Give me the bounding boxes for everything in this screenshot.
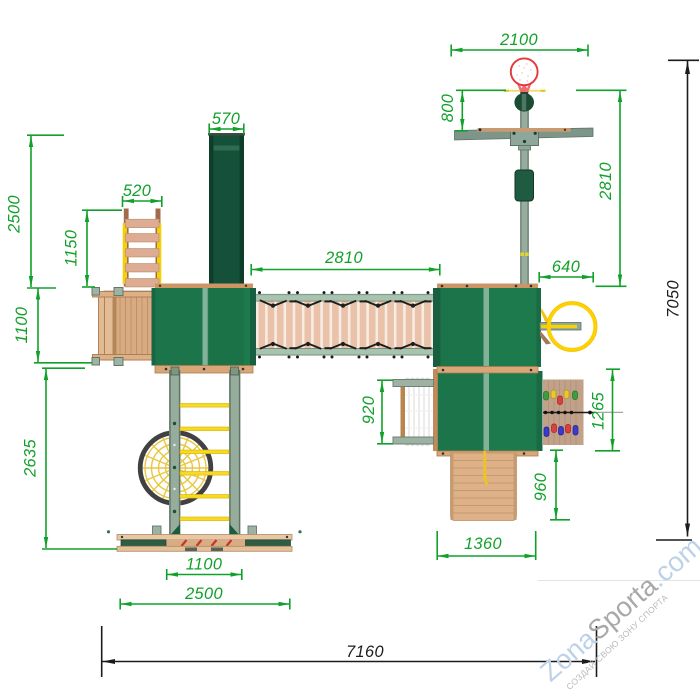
svg-text:920: 920 xyxy=(360,396,378,424)
svg-text:520: 520 xyxy=(123,182,151,200)
svg-text:2810: 2810 xyxy=(324,249,363,267)
svg-text:2500: 2500 xyxy=(6,195,24,234)
svg-text:1150: 1150 xyxy=(63,230,81,267)
svg-text:800: 800 xyxy=(439,94,457,122)
svg-text:2500: 2500 xyxy=(184,585,223,603)
svg-text:960: 960 xyxy=(532,473,550,501)
svg-text:7160: 7160 xyxy=(346,643,384,661)
svg-text:7050: 7050 xyxy=(665,280,683,318)
svg-text:1100: 1100 xyxy=(186,556,223,574)
svg-text:2635: 2635 xyxy=(22,439,40,478)
svg-text:1265: 1265 xyxy=(590,392,608,430)
svg-text:ZonaSporta.com: ZonaSporta.com xyxy=(534,530,700,687)
svg-text:640: 640 xyxy=(552,258,580,276)
svg-text:2100: 2100 xyxy=(499,31,538,49)
svg-text:570: 570 xyxy=(212,110,240,128)
svg-text:1100: 1100 xyxy=(13,307,31,344)
svg-text:1360: 1360 xyxy=(464,535,502,553)
svg-text:2810: 2810 xyxy=(597,162,615,201)
